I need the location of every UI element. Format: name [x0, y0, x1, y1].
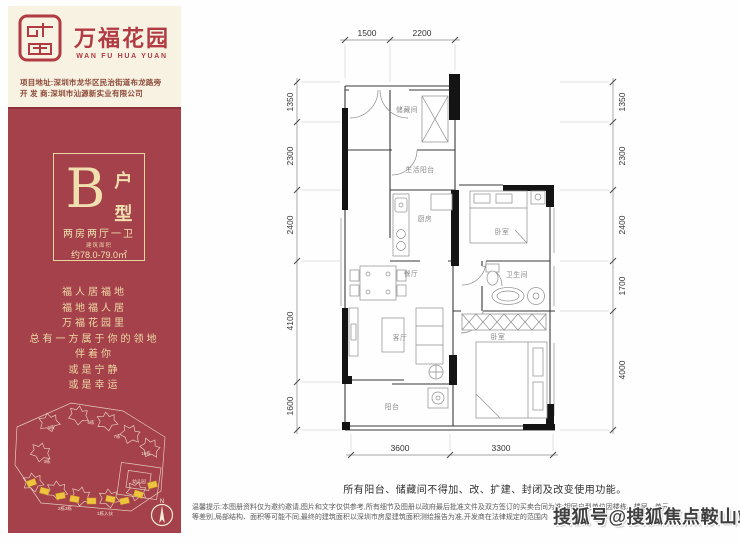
slogan-line: 福人居福地	[8, 285, 181, 301]
site-map-label: 5栋	[47, 424, 55, 431]
north-label: N	[160, 499, 164, 505]
site-map-label: 10栋	[141, 450, 151, 457]
slogan-line: 福地福人居	[8, 301, 181, 317]
dim-label-right-3: 2400	[617, 215, 627, 234]
room-label-bedroom1: 卧室	[495, 227, 510, 236]
dim-label-left-2: 2300	[285, 146, 295, 165]
watermark: 搜狐号@搜狐焦点鞍山站	[553, 503, 740, 529]
project-developer: 开 发 商:深圳市汕源新实业有限公司	[20, 88, 161, 99]
slogan-line: 万福花园里	[8, 316, 181, 332]
site-map-label: 幼儿园	[132, 478, 146, 485]
project-address: 项目地址:深圳市龙华区民治街道布龙路旁	[20, 77, 161, 88]
dim-label-right-4: 1700	[617, 276, 627, 295]
room-label-life-balcony: 生活阳台	[405, 165, 434, 174]
floor-plan: 1500 2200 1350 2300 2400 4100 1600 1350 …	[270, 8, 700, 493]
dim-label-left-1: 1350	[285, 92, 295, 111]
site-map: 5栋 6栋 7栋 10栋 3栋 幼儿园 2栋3栋 1栋入伙 N	[13, 397, 176, 529]
site-map-label: 7栋	[113, 433, 121, 440]
compass-icon: N	[152, 499, 173, 526]
dim-label-left-4: 4100	[285, 311, 295, 330]
unit-type-letter: B	[66, 158, 106, 226]
dim-label-right-1: 1350	[617, 92, 627, 111]
slogan-line: 总有一方属于你的领地	[8, 332, 181, 348]
slogan-line: 伴着你	[8, 347, 181, 363]
room-label-bathroom: 卫生间	[506, 270, 528, 279]
unit-area-value: 约78.0-79.0㎡	[54, 248, 144, 261]
unit-type-char-1: 户	[114, 167, 132, 193]
unit-type-char-2: 型	[114, 200, 132, 226]
project-info: 项目地址:深圳市龙华区民治街道布龙路旁 开 发 商:深圳市汕源新实业有限公司	[20, 77, 161, 99]
furniture-layer	[349, 96, 547, 418]
unit-type-heading: B 户 型	[54, 158, 144, 226]
room-label-bedroom2: 卧室	[491, 332, 506, 341]
room-label-kitchen: 厨房	[418, 214, 433, 223]
site-map-label: 3栋	[43, 458, 51, 465]
plan-usage-note: 所有阳台、储藏间不得加、改、扩建、封闭及改变使用功能。	[270, 481, 700, 496]
site-map-label: 6栋	[87, 419, 95, 426]
dim-label-left-3: 2400	[285, 215, 295, 234]
room-label-dining: 餐厅	[404, 269, 419, 278]
slogan-line: 或是幸运	[8, 378, 181, 394]
dim-label-top-1: 1500	[358, 28, 377, 38]
project-title: 万福花园	[66, 21, 178, 53]
room-label-storage: 储藏间	[396, 105, 418, 114]
dim-label-left-5: 1600	[285, 396, 295, 415]
site-map-label: 1栋入伙	[97, 510, 114, 517]
dim-label-bottom-2: 3300	[492, 443, 511, 453]
unit-layout-desc: 两房两厅一卫	[54, 225, 144, 240]
project-title-en: WAN FU HUA YUAN	[66, 53, 178, 60]
brand-seal-icon	[18, 14, 62, 62]
slogan-block: 福人居福地 福地福人居 万福花园里 总有一方属于你的领地 伴着你 或是宁静 或是…	[8, 285, 181, 394]
brand-header: 万福花园 WAN FU HUA YUAN 项目地址:深圳市龙华区民治街道布龙路旁…	[8, 6, 181, 107]
slogan-line: 或是宁静	[8, 363, 181, 379]
unit-info-panel: B 户 型 两房两厅一卫 建筑面积 约78.0-79.0㎡ 福人居福地 福地福人…	[8, 107, 181, 533]
site-map-label: 2栋3栋	[58, 505, 73, 512]
unit-type-card: B 户 型 两房两厅一卫 建筑面积 约78.0-79.0㎡	[53, 153, 145, 261]
unit-type-chars: 户 型	[114, 158, 132, 226]
room-label-living: 客厅	[393, 333, 408, 342]
dim-label-bottom-1: 3600	[391, 443, 410, 453]
dim-label-right-5: 4000	[617, 360, 627, 379]
dim-label-top-2: 2200	[413, 28, 432, 38]
dim-label-right-2: 2300	[617, 146, 627, 165]
room-label-balcony: 阳台	[385, 402, 400, 411]
